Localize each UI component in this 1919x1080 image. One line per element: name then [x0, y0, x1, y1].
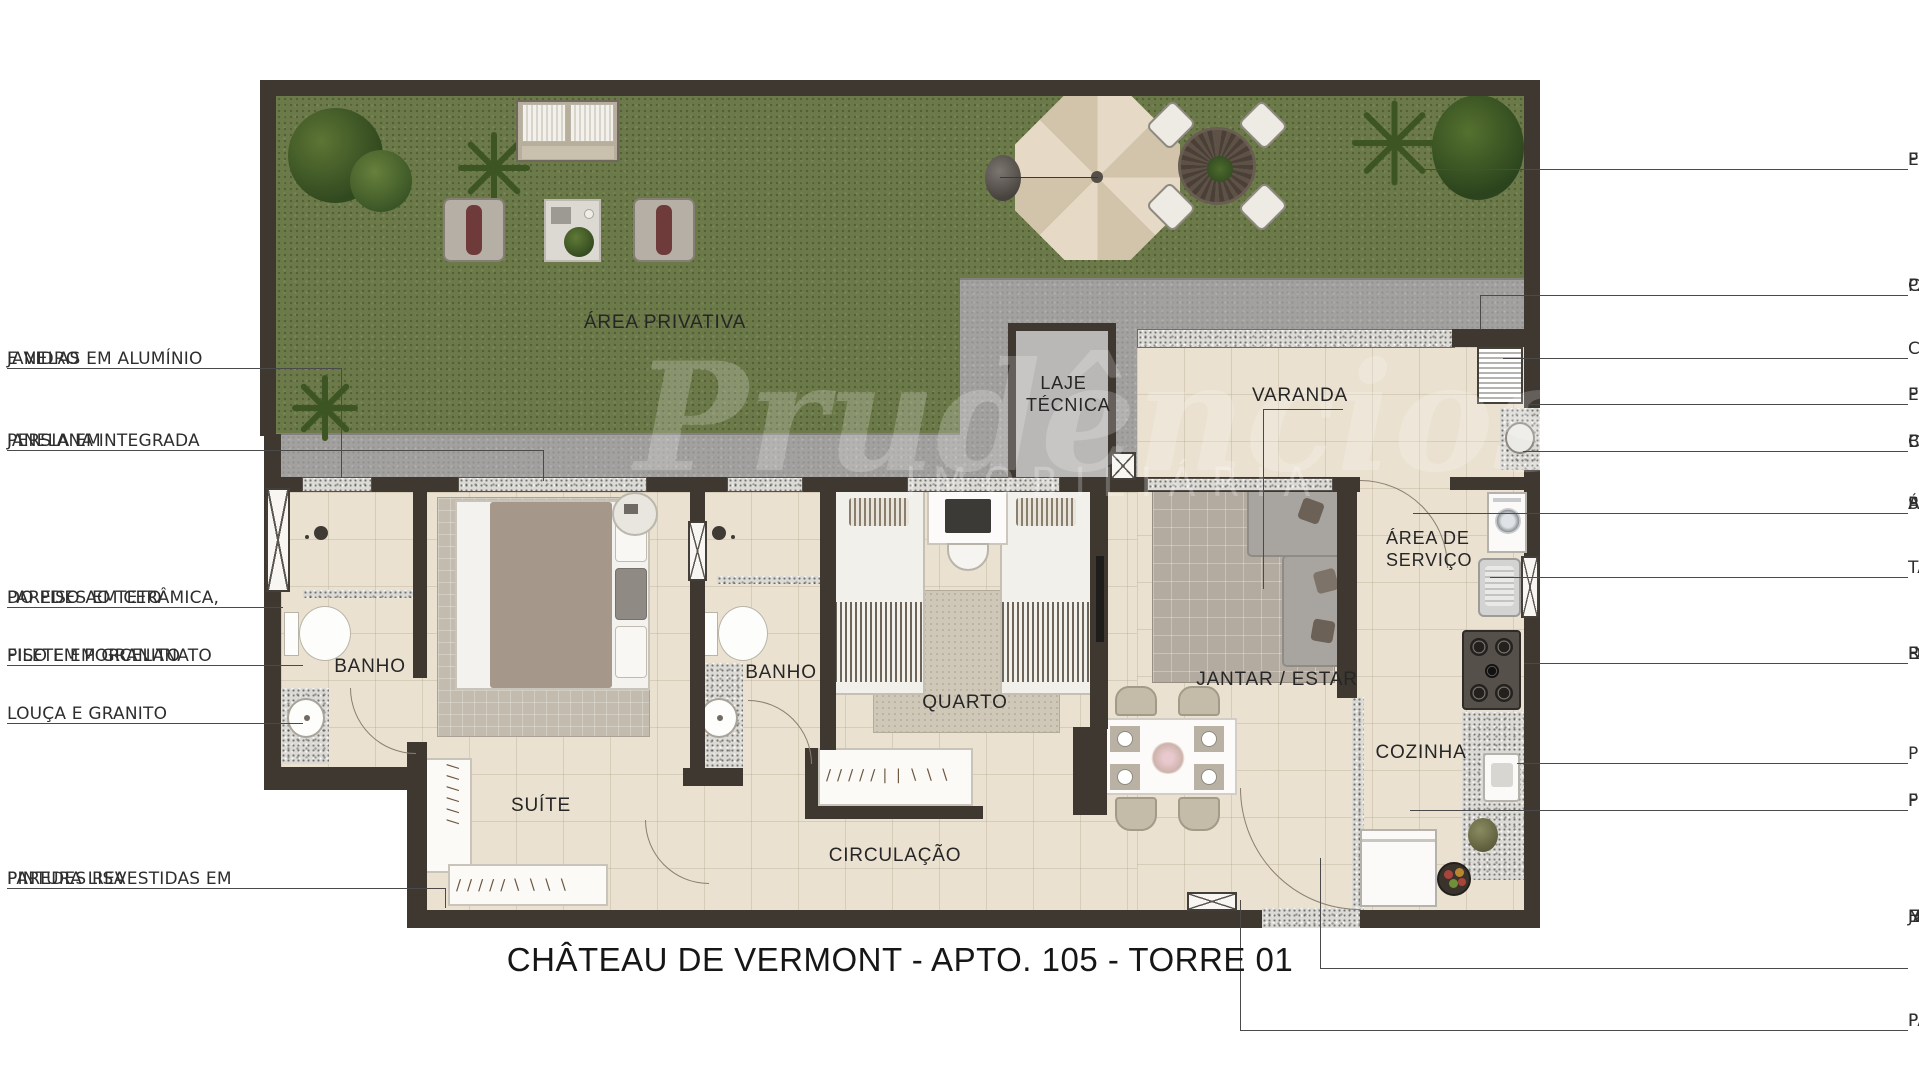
annotation-line: E VIDRO — [7, 349, 79, 370]
wall-left-garden — [260, 80, 276, 436]
sink-icon — [287, 698, 325, 738]
annotation-line: E/OU GRAMADO — [1908, 150, 1919, 171]
window-persiana-icon — [266, 488, 290, 592]
window-icon — [688, 521, 707, 581]
annotation-line: CUBA EM INOX — [1908, 432, 1919, 453]
bottle-icon — [1468, 818, 1498, 852]
wall-step — [407, 742, 427, 928]
wall-jantar-stub — [1073, 727, 1107, 815]
annotation-line: PISO EM PORCELANATO. — [1908, 494, 1919, 515]
fruit-bowl-icon — [1437, 862, 1471, 896]
wall-bottom — [407, 910, 1262, 928]
leader-line — [1320, 858, 1321, 968]
room-label-circulacao: CIRCULAÇÃO — [829, 845, 962, 867]
leader-line — [1480, 295, 1908, 296]
window-sill — [458, 477, 647, 492]
page-title: CHÂTEAU DE VERMONT - APTO. 105 - TORRE 0… — [507, 941, 1293, 979]
wall-banho1-suite — [413, 492, 427, 678]
kitchen-sink-icon — [1483, 753, 1520, 802]
annotation-line: PINTURA LISA — [1908, 1011, 1919, 1032]
leader-line — [1410, 810, 1908, 811]
wall-closet-bottom — [805, 806, 983, 819]
leader-line — [445, 888, 446, 908]
entrance-vent-icon — [1187, 892, 1237, 911]
granite-filete — [303, 590, 417, 598]
sofa-pillow — [1310, 618, 1335, 643]
leader-line — [1524, 663, 1908, 664]
room-label-quarto: QUARTO — [922, 692, 1007, 714]
toilet-bowl-icon — [299, 606, 351, 661]
stove-icon — [1462, 630, 1521, 710]
shower-icon — [712, 526, 726, 540]
wall-top — [260, 80, 1540, 96]
wall-bottom-left — [264, 767, 420, 790]
room-label-suite: SUÍTE — [511, 795, 571, 817]
granite-filete — [717, 576, 820, 584]
dining-chair — [1115, 797, 1157, 831]
room-label-cozinha: COZINHA — [1375, 742, 1466, 764]
annotation-line: CONFORME FACHADA — [1908, 276, 1919, 297]
annotation-line: DO PISO AO TETO — [7, 588, 162, 609]
garden-bench — [516, 100, 619, 162]
annotation-line: PREVISÃO DE BANCADA — [1908, 744, 1919, 765]
palm-icon — [292, 375, 358, 441]
suite-closet-bottom: ∕∕∕∕∕∖∖∖∖ — [448, 864, 608, 906]
dining-chair — [1178, 797, 1220, 831]
single-bed — [1000, 490, 1092, 695]
leader-line — [341, 368, 342, 477]
leader-line — [1490, 577, 1908, 578]
leader-line — [1425, 169, 1908, 170]
wall-jantar-servico — [1337, 483, 1357, 698]
tv-icon — [1096, 556, 1104, 642]
annotation-line: FILETE EM GRANITO — [7, 646, 180, 667]
dining-chair — [1115, 686, 1157, 716]
annotation-line: E VIDRO — [1908, 385, 1919, 406]
umbrella-arm — [1000, 177, 1098, 178]
leader-line — [1413, 513, 1908, 514]
garden-dining-table — [1178, 127, 1256, 205]
annotation-line: FILETE EM GRANITO — [1908, 791, 1919, 812]
tanque-icon — [1478, 558, 1521, 617]
leader-line — [1503, 358, 1908, 359]
room-label-banho-2: BANHO — [745, 662, 817, 684]
annotation-line: NIVELADO SEM REVESTIMENTO. — [1908, 907, 1919, 928]
annotation-line: LOUÇA E GRANITO — [7, 704, 167, 725]
room-label-banho-1: BANHO — [334, 656, 406, 678]
annotation-line: CHURRASQUEIRA — [1908, 339, 1919, 360]
garden-coffee-table — [544, 199, 601, 262]
palm-icon — [1352, 100, 1437, 185]
wall-bottom-right — [1360, 910, 1524, 928]
annotation-line: PINTURA LISA — [7, 869, 126, 890]
bush-icon — [350, 150, 412, 212]
sink-icon — [700, 698, 738, 738]
fridge-icon — [1360, 829, 1437, 907]
single-bed — [833, 490, 925, 695]
wall-banho2-bottom — [683, 768, 743, 786]
leader-line — [1320, 968, 1908, 969]
leader-line — [543, 450, 544, 481]
leader-line — [1480, 295, 1481, 330]
toilet-icon — [284, 612, 299, 656]
annotation-line: EM PINTURA LISA. — [1908, 644, 1919, 665]
window-icon — [1521, 556, 1539, 618]
toilet-icon — [703, 612, 718, 656]
quarto-closet: ∕∕∕∕∕∣∣∖∖∖ — [818, 748, 973, 806]
varanda-pointer — [1263, 409, 1264, 589]
suite-closet: ∕∕∕∕∕∕ — [425, 758, 472, 873]
leader-line — [1240, 1030, 1908, 1031]
garden-armchair — [443, 198, 505, 262]
garden-armchair — [633, 198, 695, 262]
dining-table — [1100, 718, 1237, 795]
room-label-area-privativa: ÁREA PRIVATIVA — [584, 312, 746, 334]
exterior-cutout — [250, 790, 407, 935]
leader-line — [1523, 451, 1908, 452]
varanda-pointer — [1263, 409, 1343, 410]
leader-line — [1528, 404, 1908, 405]
annotation-line: PERSIANA INTEGRADA — [7, 431, 200, 452]
room-label-area-servico: ÁREA DE SERVIÇO — [1386, 527, 1481, 571]
floor-plan: ∕∕∕∕∕∕ ∕∕∕∕∕∖∖∖∖ ∕∕∕∕∕∣∣∖∖∖ — [0, 0, 1919, 1080]
room-label-laje-tecnica: LAJE TÉCNICA — [1026, 372, 1101, 416]
shower-icon — [314, 526, 328, 540]
leader-line — [1517, 763, 1908, 764]
room-label-varanda: VARANDA — [1252, 385, 1348, 407]
bush-icon — [1432, 95, 1524, 200]
annotation-line: TANQUE EM LOUÇA — [1908, 558, 1919, 579]
entrance-threshold — [1262, 908, 1360, 928]
window-sill — [302, 477, 372, 492]
room-label-jantar-estar: JANTAR / ESTAR — [1196, 669, 1357, 691]
wall-banho2-quarto — [820, 492, 836, 750]
toilet-bowl-icon — [718, 606, 768, 661]
